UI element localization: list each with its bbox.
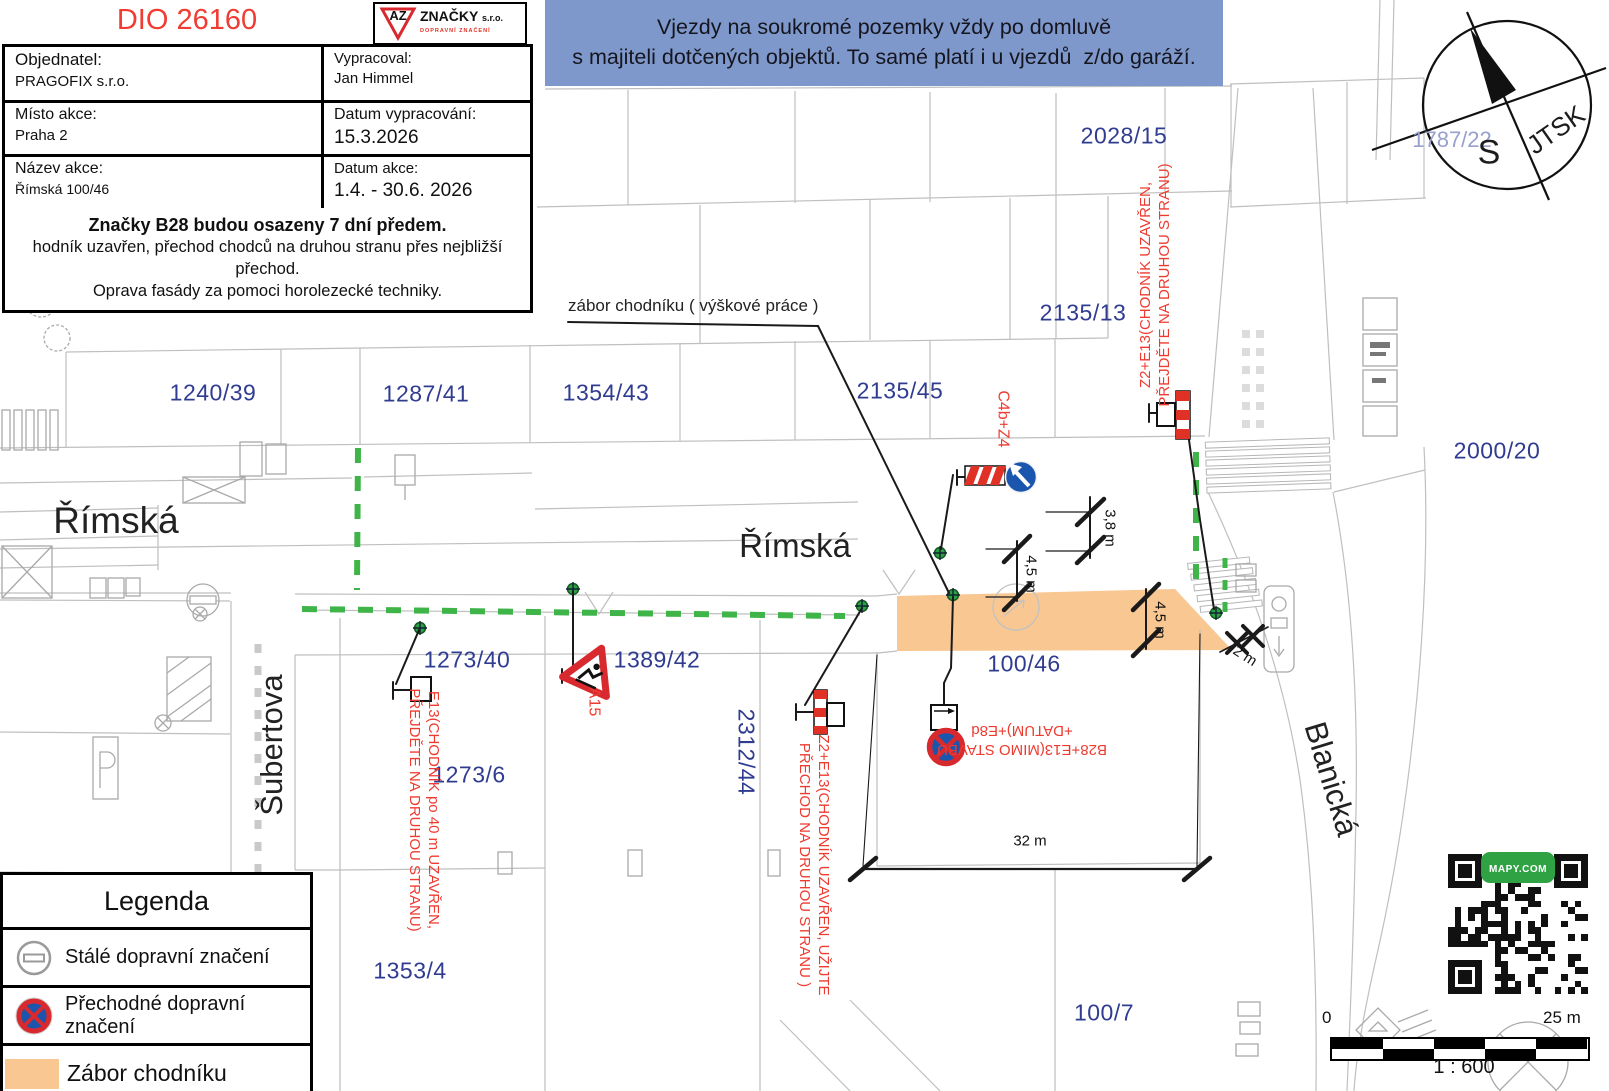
mapy-badge: MAPY.COM: [1481, 852, 1555, 883]
sidewalk-occupation-callout: zábor chodníku ( výškové práce ): [568, 296, 818, 316]
field-datum-akce: Datum akce: 1.4. - 30.6. 2026: [321, 157, 530, 208]
field-vypracoval: Vypracoval: Jan Himmel: [321, 47, 530, 103]
title-block: DIO 26160 AZ ZNAČKY s.r.o. DOPRAVNÍ ZNAČ…: [2, 0, 533, 313]
annotation-z2-e13-middle: Z2+E13(CHODNÍK UZAVŘEN, UŽIJTEPŘECHOD NA…: [795, 734, 833, 995]
sign-c4b-z4-icon: [964, 462, 1037, 493]
qr-code: MAPY.COM: [1448, 854, 1588, 994]
company-logo: AZ ZNAČKY s.r.o. DOPRAVNÍ ZNAČENÍ: [373, 2, 527, 45]
field-objednatel: Objednatel: PRAGOFIX s.r.o.: [5, 47, 321, 103]
scale-end-label: 25 m: [1543, 1008, 1581, 1028]
parcel-label: 2135/45: [857, 378, 944, 405]
street-label-rimska-center: Římská: [739, 527, 851, 565]
crosswalk-stripes: [1188, 438, 1331, 613]
legend-item-permanent: Stálé dopravní značení: [3, 930, 310, 988]
parcel-label: 2000/20: [1454, 438, 1541, 465]
parcel-label: 100/7: [1074, 1000, 1134, 1027]
traffic-signs: [411, 391, 1190, 764]
legend-item-label: Zábor chodníku: [67, 1060, 227, 1087]
dimension-label: 3,8 m: [1102, 509, 1119, 547]
sidewalk-occupation-zone: [897, 589, 1232, 651]
scale-start-label: 0: [1322, 1008, 1331, 1028]
notice-banner: Vjezdy na soukromé pozemky vždy po domlu…: [545, 0, 1223, 86]
parcel-label: 100/46: [987, 651, 1060, 678]
street-label-subertova: Šubertova: [254, 674, 290, 815]
field-nazev-akce: Název akce: Římská 100/46: [5, 157, 321, 208]
compass-south-label: S: [1478, 134, 1501, 173]
annotation-z2-e13-right: Z2+E13(CHODNÍK UZAVŘEN,PŘEJDĚTE NA DRUHO…: [1136, 163, 1174, 406]
temporary-sign-icon: [3, 996, 65, 1036]
legend: Legenda Stálé dopravní značení Přechodné…: [0, 872, 313, 1091]
qr-finder-icon: [1448, 960, 1482, 994]
dimension-label: 32 m: [1013, 833, 1046, 850]
legend-item-occupation: Zábor chodníku: [3, 1046, 310, 1091]
legend-item-label: Stálé dopravní značení: [65, 946, 270, 969]
parcel-label: 2312/44: [733, 709, 760, 796]
logo-triangle-icon: AZ: [379, 7, 417, 41]
annotation-a15: A15: [585, 688, 604, 716]
dimension-label: 4,5 m: [1023, 555, 1040, 593]
scale-ratio-label: 1 : 600: [1404, 1056, 1524, 1079]
field-datum-vypracovani: Datum vypracování: 15.3.2026: [321, 103, 530, 157]
legend-title: Legenda: [3, 875, 310, 930]
plan-notes: Značky B28 budou osazeny 7 dní předem. h…: [2, 208, 533, 313]
dio-traffic-plan: 1787/22 JTSK S Římská Římská Šubertova B…: [0, 0, 1609, 1091]
annotation-e13-left: E13(CHODNÍK po 40 m UZAVŘEN,PŘEJDĚTE NA …: [405, 688, 443, 931]
permanent-sign-icon: [3, 938, 65, 978]
parcel-label: 2135/13: [1040, 300, 1127, 327]
qr-finder-icon: [1448, 854, 1482, 888]
sign-z2-e13-middle-icon: [814, 690, 844, 734]
parcel-label: 2028/15: [1081, 123, 1168, 150]
parcel-label: 1287/41: [383, 381, 470, 408]
legend-item-label: Přechodné dopravní značení: [65, 993, 310, 1039]
field-misto-akce: Místo akce: Praha 2: [5, 103, 321, 157]
parcel-label: 1353/4: [373, 958, 446, 985]
qr-finder-icon: [1554, 854, 1588, 888]
annotation-c4b-z4: C4b+Z4: [994, 390, 1013, 447]
street-label-rimska-west: Římská: [53, 500, 178, 542]
dimension-label: 4,5 m: [1152, 601, 1169, 639]
annotation-b28-e13: B28+E13(MIMO STAVBU+DATUM)+E8d: [937, 721, 1107, 759]
parcel-label: 1240/39: [170, 380, 257, 407]
parcel-label: 1389/42: [614, 647, 701, 674]
legend-item-temporary: Přechodné dopravní značení: [3, 988, 310, 1046]
sidewalk-occupation-swatch: [5, 1059, 59, 1089]
parcel-label: 1354/43: [563, 380, 650, 407]
parcel-label: 1273/40: [424, 647, 511, 674]
plan-number: DIO 26160: [2, 4, 372, 37]
parcel-label: 1273/6: [432, 762, 505, 789]
compass-needle-icon: [1470, 28, 1516, 104]
